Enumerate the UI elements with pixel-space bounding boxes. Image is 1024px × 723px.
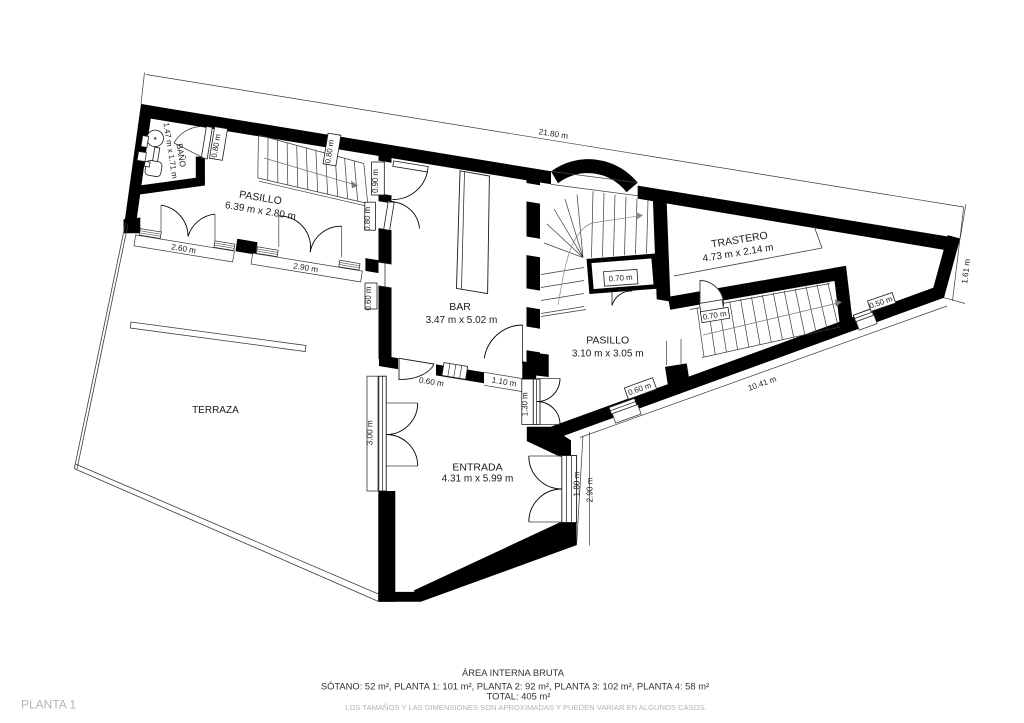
- svg-text:4.31 m x 5.99 m: 4.31 m x 5.99 m: [442, 474, 514, 485]
- svg-text:1.30 m: 1.30 m: [521, 392, 530, 416]
- svg-text:0.70 m: 0.70 m: [608, 273, 632, 284]
- svg-text:2.90 m: 2.90 m: [586, 477, 595, 502]
- svg-text:TERRAZA: TERRAZA: [192, 405, 239, 416]
- svg-text:ENTRADA: ENTRADA: [452, 462, 502, 474]
- svg-text:0.60 m: 0.60 m: [364, 287, 373, 311]
- svg-text:0.80 m: 0.80 m: [363, 207, 372, 231]
- svg-text:3.10 m x 3.05 m: 3.10 m x 3.05 m: [572, 349, 644, 360]
- svg-text:0.90 m: 0.90 m: [371, 169, 380, 193]
- svg-text:BAR: BAR: [449, 301, 471, 313]
- svg-text:PLANTA 1: PLANTA 1: [21, 698, 76, 712]
- svg-text:3.00 m: 3.00 m: [366, 420, 375, 445]
- svg-text:PASILLO: PASILLO: [586, 335, 629, 347]
- svg-text:ÁREA INTERNA BRUTA: ÁREA INTERNA BRUTA: [462, 667, 565, 678]
- svg-text:3.47 m x 5.02 m: 3.47 m x 5.02 m: [426, 315, 498, 326]
- svg-text:LOS TAMAÑOS Y LAS DIMENSIONES: LOS TAMAÑOS Y LAS DIMENSIONES SON APROXI…: [345, 703, 707, 712]
- svg-text:TOTAL: 405 m²: TOTAL: 405 m²: [487, 691, 551, 702]
